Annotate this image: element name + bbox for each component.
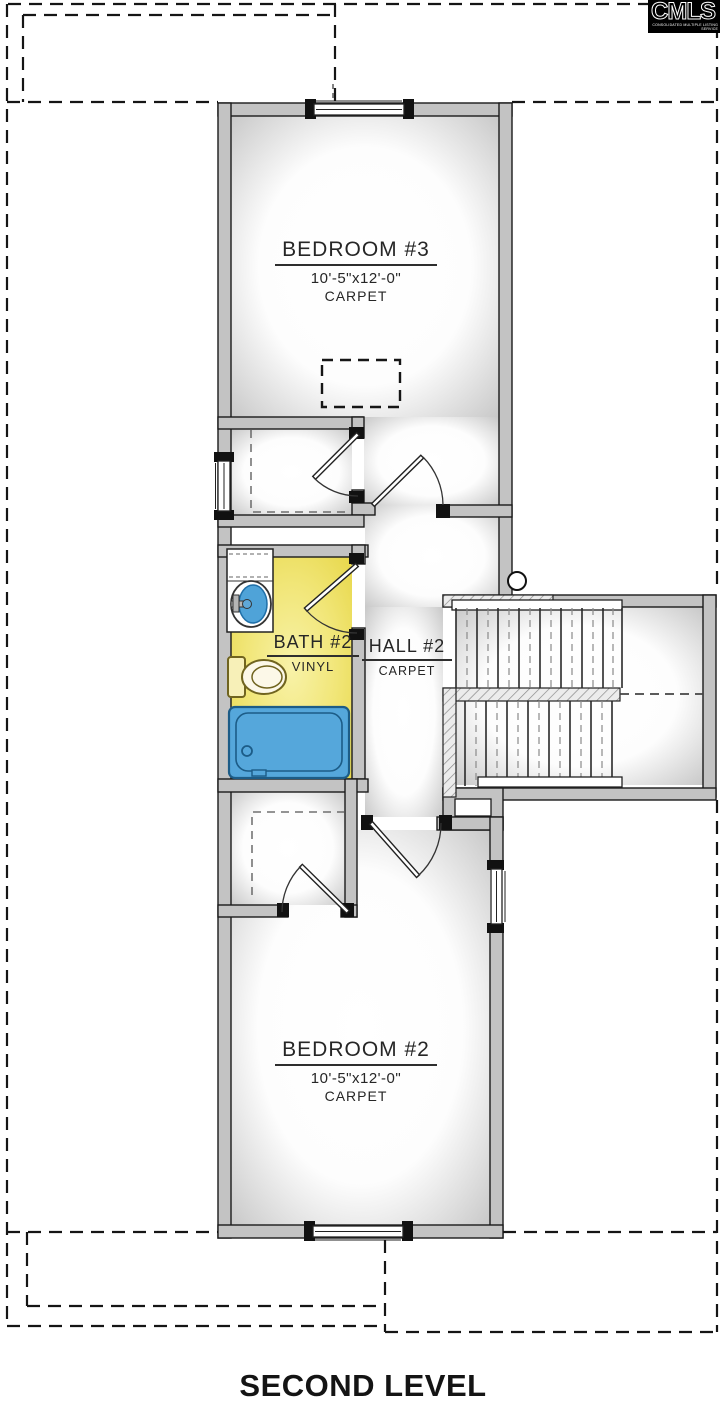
cmls-logo: CMLS CONSOLIDATED MULTIPLE LISTING SERVI…: [648, 0, 720, 33]
bedroom2-label: BEDROOM #2 10'-5"x12'-0" CARPET: [196, 1038, 516, 1104]
bedroom3-label: BEDROOM #3 10'-5"x12'-0" CARPET: [196, 238, 516, 304]
bedroom3-name: BEDROOM #3: [275, 238, 437, 266]
floor-plan-drawing: [0, 0, 720, 1411]
chase-box-interior: [455, 799, 491, 816]
smoke-detector-icon: [508, 572, 526, 590]
wall-closet1-south: [218, 515, 364, 527]
hall2-name: HALL #2: [362, 636, 452, 661]
sink-vanity-icon: [227, 549, 273, 632]
hall-floor-upper: [365, 505, 499, 607]
stair-rail-left: [443, 688, 456, 797]
bedroom2-closet-floor: [231, 791, 345, 905]
wall-right-upper: [499, 103, 512, 607]
wall-closet1-north: [218, 417, 363, 429]
floor-plan-page: BEDROOM #3 10'-5"x12'-0" CARPET BATH #2 …: [0, 0, 720, 1411]
stair-landing-rail: [443, 688, 620, 701]
page-title: SECOND LEVEL: [110, 1368, 616, 1404]
bedroom2-dimensions: 10'-5"x12'-0": [196, 1070, 516, 1087]
cmls-logo-tagline: CONSOLIDATED MULTIPLE LISTING SERVICE: [648, 23, 720, 31]
bedroom2-name: BEDROOM #2: [275, 1038, 437, 1066]
stair-nosing-bottom: [478, 777, 622, 787]
bathtub-icon: [229, 707, 349, 778]
cmls-logo-text: CMLS: [648, 0, 720, 23]
bedroom3-dimensions: 10'-5"x12'-0": [196, 270, 516, 287]
hall2-label: HALL #2 CARPET: [327, 636, 487, 678]
wall-stub: [352, 503, 375, 515]
wall-stair-right: [703, 595, 716, 797]
bedroom3-closet-floor: [231, 429, 352, 515]
bedroom2-flooring: CARPET: [196, 1088, 516, 1104]
hall2-flooring: CARPET: [327, 664, 487, 678]
wall-closet2-east: [345, 779, 357, 917]
bedroom3-flooring: CARPET: [196, 288, 516, 304]
